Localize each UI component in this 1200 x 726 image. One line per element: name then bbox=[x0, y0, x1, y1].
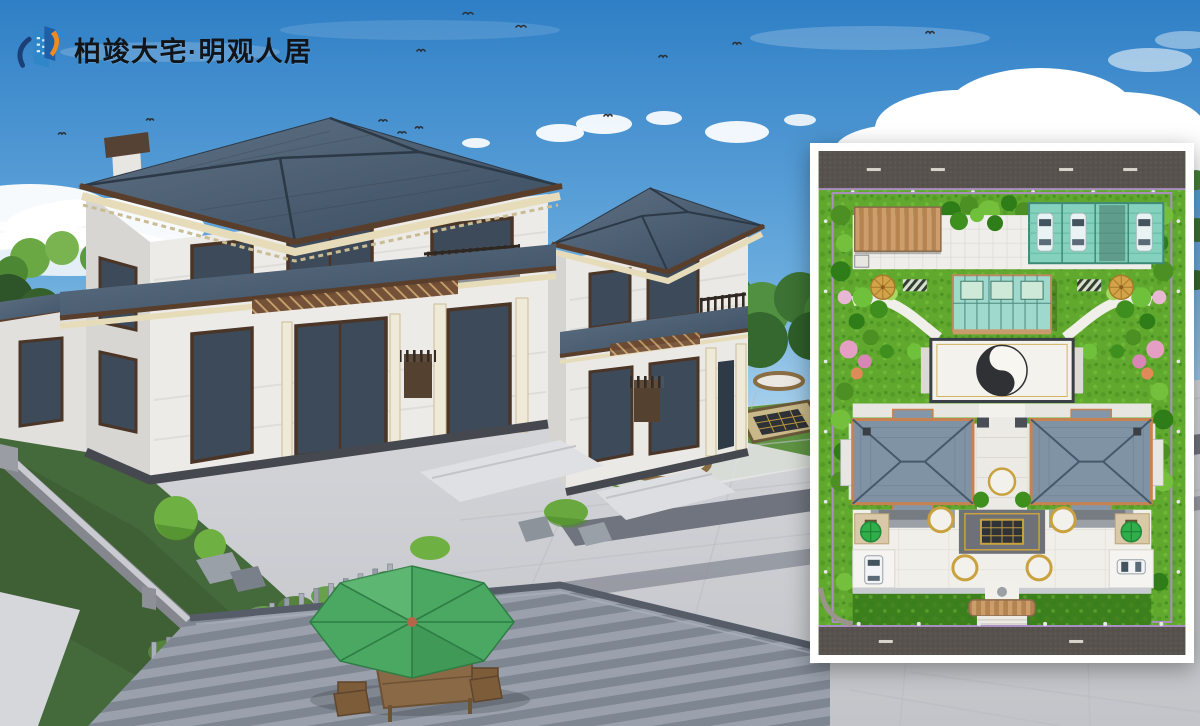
plan-umbrella-left bbox=[871, 275, 895, 299]
plan-road-top bbox=[819, 151, 1186, 194]
patio-umbrella bbox=[310, 566, 514, 678]
brand-logo-text: 柏竣大宅·明观人居 bbox=[74, 30, 313, 69]
plan-umbrella-right bbox=[1109, 275, 1133, 299]
yinyang-symbol bbox=[977, 345, 1027, 395]
brand-building-icon bbox=[14, 24, 66, 74]
seating-right bbox=[1115, 514, 1149, 544]
brand-logo: 柏竣大宅·明观人居 bbox=[14, 24, 313, 74]
plan-yinyang-plaza bbox=[921, 339, 1083, 401]
plan-villa-right-roof bbox=[1027, 410, 1163, 514]
seating-left bbox=[855, 514, 889, 544]
site-plan-drawing bbox=[818, 151, 1186, 655]
render-canvas: 柏竣大宅·明观人居 bbox=[0, 0, 1200, 726]
plan-villa-left-roof bbox=[841, 410, 977, 514]
plan-carport bbox=[1029, 203, 1163, 263]
plan-pavilion bbox=[953, 275, 1057, 334]
plan-rear-canopy bbox=[855, 207, 941, 254]
courtyard-center-feature bbox=[959, 510, 1045, 554]
parking-pad-right bbox=[1109, 550, 1153, 588]
site-plan-card bbox=[810, 143, 1194, 663]
parking-pad-left bbox=[853, 550, 895, 588]
